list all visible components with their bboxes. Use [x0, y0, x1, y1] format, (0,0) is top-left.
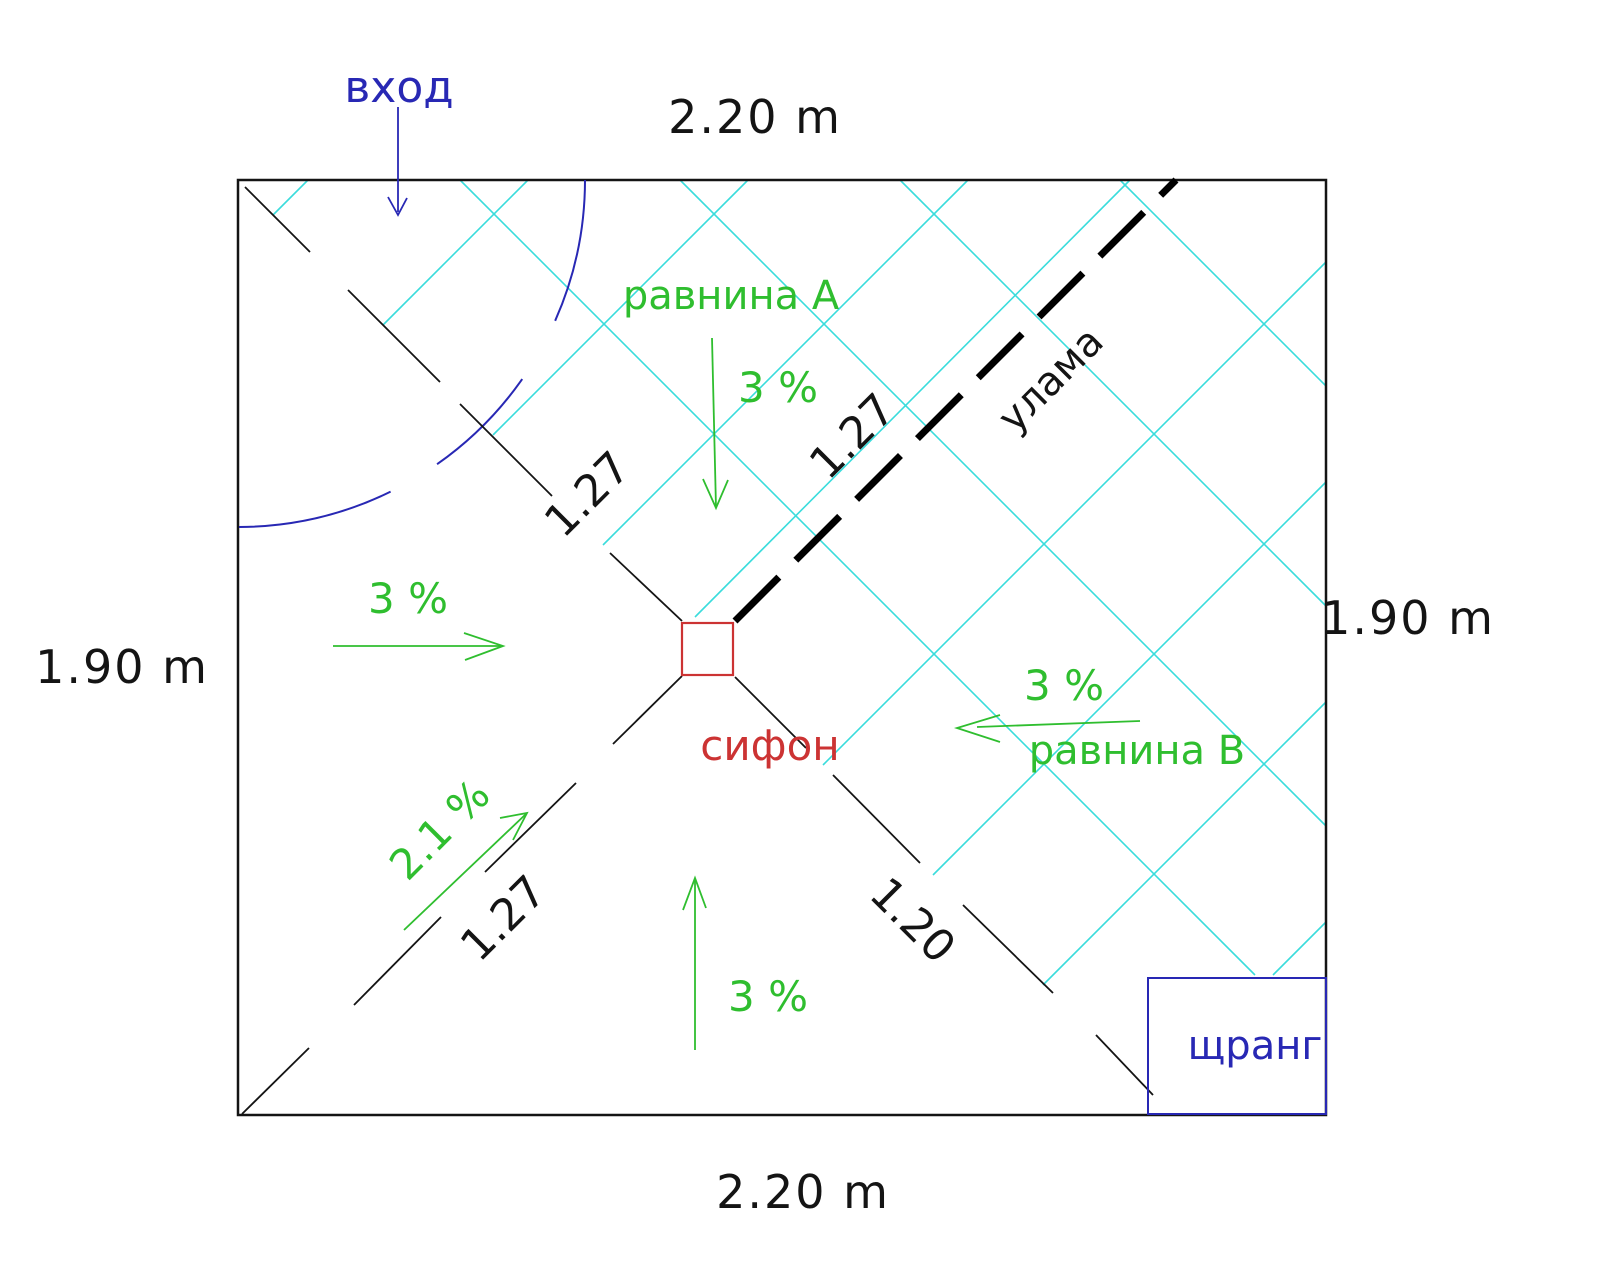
fold-line-bottom-left [242, 676, 682, 1114]
slope-bottom-label: 3 % [728, 976, 808, 1018]
dimension-bottom-label: 2.20 m [716, 1169, 890, 1215]
slope-plane-b-label: 3 % [1024, 665, 1104, 707]
slope-left-label: 3 % [368, 578, 448, 620]
slope-arrow-left [333, 633, 503, 660]
entrance-arrow [388, 107, 407, 215]
plane-b-label: равнина В [1029, 731, 1245, 771]
slope-arrow-bottom [683, 878, 706, 1050]
drain-square [682, 623, 733, 675]
dimension-right-label: 1.90 m [1321, 595, 1495, 641]
fold-line-top-left [245, 187, 682, 621]
dimension-left-label: 1.90 m [35, 644, 209, 690]
entrance-label: вход [344, 66, 453, 110]
plane-a-label: равнина А [623, 276, 839, 316]
slope-plane-a-label: 3 % [738, 367, 818, 409]
riser-label: щранг [1188, 1026, 1323, 1066]
drain-label: сифон [700, 725, 839, 767]
dimension-top-label: 2.20 m [668, 94, 842, 140]
floor-plan-page: 2.20 m 2.20 m 1.90 m 1.90 m вход равнина… [0, 0, 1600, 1280]
